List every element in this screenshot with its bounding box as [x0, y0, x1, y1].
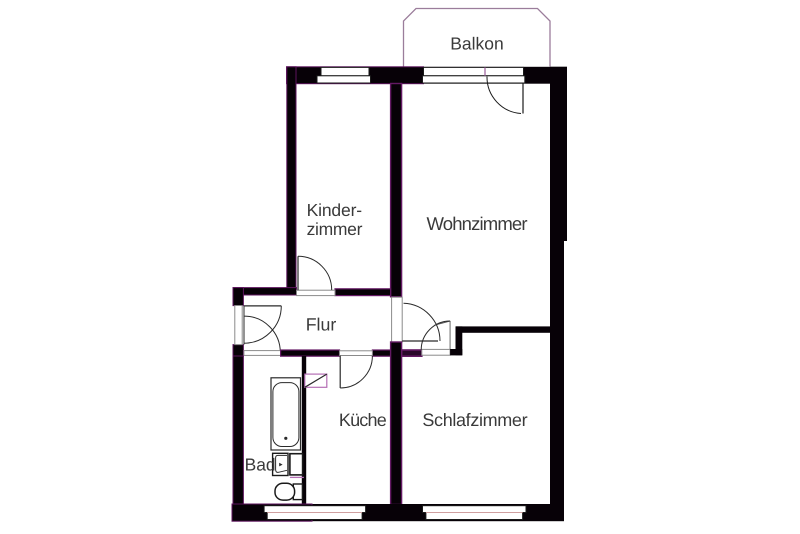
svg-text:Bad: Bad: [245, 454, 276, 474]
svg-text:zimmer: zimmer: [307, 219, 363, 239]
svg-text:Balkon: Balkon: [450, 34, 504, 54]
svg-text:Wohnzimmer: Wohnzimmer: [427, 213, 528, 234]
svg-text:Küche: Küche: [339, 410, 387, 430]
svg-text:Kinder-: Kinder-: [307, 200, 363, 220]
svg-text:Flur: Flur: [306, 315, 337, 335]
svg-text:Schlafzimmer: Schlafzimmer: [422, 410, 527, 430]
